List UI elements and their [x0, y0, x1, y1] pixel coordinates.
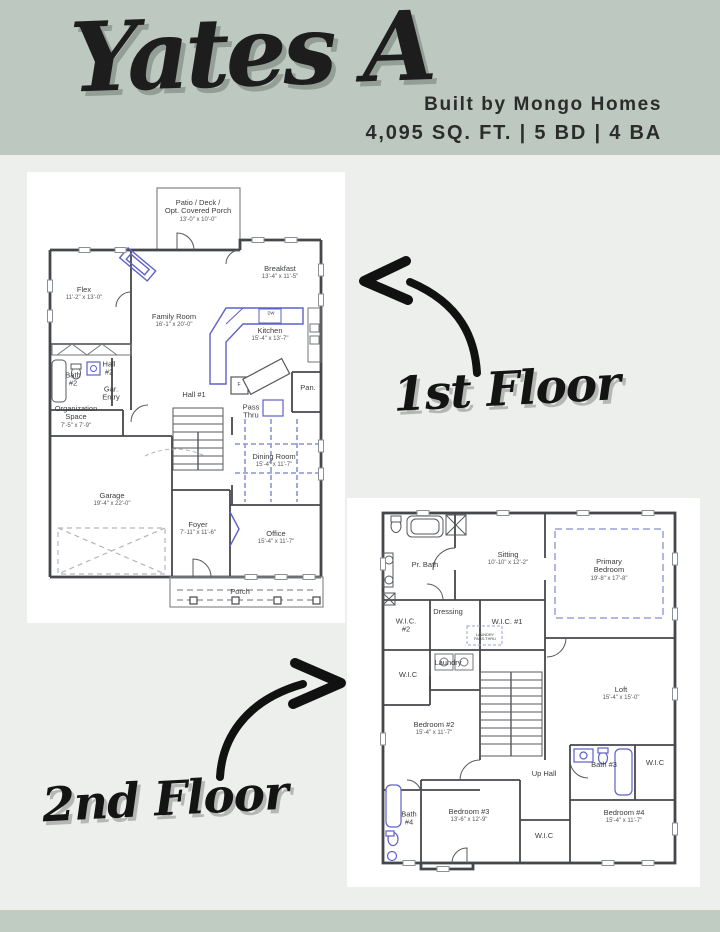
bath4-fixtures — [386, 785, 401, 861]
room-label: Up Hall — [532, 770, 557, 778]
room-name: Loft — [603, 686, 640, 694]
room-label: Office15'-4" x 11'-7" — [258, 530, 294, 546]
cased-opening — [145, 449, 205, 456]
room-dimensions: 11'-2" x 13'-0" — [66, 295, 102, 302]
room-name: Dressing — [433, 608, 463, 616]
room-name: Up Hall — [532, 770, 557, 778]
room-label: Gar. Entry — [102, 386, 120, 403]
room-dimensions: 15'-4" x 11'-7" — [252, 462, 295, 469]
room-name: Bath #4 — [401, 811, 416, 828]
room-name: Hall #1 — [182, 391, 205, 399]
room-label: LAUNDRY PASS-THRU — [474, 633, 496, 642]
room-label: Porch — [230, 588, 250, 596]
office-french-door — [230, 512, 239, 546]
room-name: Primary Bedroom — [591, 558, 628, 575]
room-dimensions: 13'-4" x 11'-5" — [262, 274, 298, 281]
room-label: Primary Bedroom19'-8" x 17'-8" — [591, 558, 628, 583]
room-label: Sitting10'-10" x 12'-2" — [488, 551, 528, 567]
room-label: W.I.C. #1 — [492, 618, 523, 626]
room-label: W.I.C — [399, 671, 417, 679]
stairs — [480, 672, 542, 756]
room-label: Dressing — [433, 608, 463, 616]
room-name: W.I.C. #1 — [492, 618, 523, 626]
room-label: Bedroom #415'-4" x 11'-7" — [604, 809, 645, 825]
room-name: Sitting — [488, 551, 528, 559]
builder-name: Built by Mongo Homes — [365, 94, 662, 116]
room-label: Patio / Deck / Opt. Covered Porch13'-0" … — [165, 199, 231, 224]
room-dimensions: 15'-4" x 13'-7" — [252, 336, 289, 343]
room-label: Pass Thru — [243, 404, 260, 421]
room-label: Dining Room15'-4" x 11'-7" — [252, 453, 295, 469]
room-dimensions: 15'-4" x 11'-7" — [604, 818, 645, 825]
room-label: Pan. — [300, 384, 315, 392]
room-label: W.I.C — [646, 759, 664, 767]
room-label: Breakfast13'-4" x 11'-5" — [262, 265, 298, 281]
room-label: Pr. Bath — [412, 561, 439, 569]
room-name: Garage — [94, 492, 131, 500]
room-dimensions: 7'-5" x 7'-9" — [55, 423, 98, 430]
room-dimensions: 15'-4" x 15'-0" — [603, 695, 640, 702]
closet-band — [52, 344, 131, 355]
room-label: Family Room16'-1" x 20'-0" — [152, 313, 196, 329]
room-name: Pr. Bath — [412, 561, 439, 569]
room-label: Bedroom #313'-6" x 12'-9" — [449, 808, 490, 824]
room-name: LAUNDRY PASS-THRU — [474, 633, 496, 642]
room-label: W.I.C — [535, 832, 553, 840]
room-name: Bath #2 — [65, 372, 80, 389]
room-label: Organization Space7'-5" x 7'-9" — [55, 405, 98, 430]
page-title: Yates A — [68, 0, 451, 109]
pass-thru-cabinet — [263, 400, 283, 416]
room-name: Bedroom #4 — [604, 809, 645, 817]
room-dimensions: 15'-4" x 11'-7" — [258, 539, 294, 546]
room-name: Laundry — [434, 659, 461, 667]
room-name: Office — [258, 530, 294, 538]
footer-band — [0, 910, 720, 932]
room-name: Patio / Deck / Opt. Covered Porch — [165, 199, 231, 216]
room-name: W.I.C — [646, 759, 664, 767]
room-dimensions: 19'-8" x 17'-8" — [591, 576, 628, 583]
room-dimensions: 13'-0" x 10'-0" — [165, 217, 231, 224]
room-label: F — [237, 383, 240, 389]
room-label: Loft15'-4" x 15'-0" — [603, 686, 640, 702]
room-label: Bath #2 — [65, 372, 80, 389]
room-name: Pan. — [300, 384, 315, 392]
room-label: Bath #3 — [591, 761, 617, 769]
room-dimensions: 13'-6" x 12'-9" — [449, 817, 490, 824]
room-name: F — [237, 383, 240, 389]
appliance-column — [308, 308, 321, 362]
room-label: Laundry — [434, 659, 461, 667]
room-name: Flex — [66, 286, 102, 294]
room-label: DW — [268, 312, 275, 317]
room-name: W.I.C. #2 — [396, 618, 416, 635]
header-info: Built by Mongo Homes 4,095 SQ. FT. | 5 B… — [365, 94, 662, 145]
door-swings — [407, 548, 588, 863]
room-dimensions: 19'-4" x 22'-0" — [94, 501, 131, 508]
first-floor-label: 1st Floor — [392, 356, 621, 423]
kitchen-island — [231, 359, 290, 395]
room-name: Foyer — [180, 521, 216, 529]
room-label: Foyer7'-11" x 11'-6" — [180, 521, 216, 537]
room-name: Porch — [230, 588, 250, 596]
room-label: Hall #1 — [182, 391, 205, 399]
floorplan-panel-second-floor: Pr. BathSitting10'-10" x 12'-2"Primary B… — [347, 498, 700, 887]
room-label: Bedroom #215'-4" x 11'-7" — [414, 721, 455, 737]
home-specs: 4,095 SQ. FT. | 5 BD | 4 BA — [365, 122, 662, 145]
room-name: Pass Thru — [243, 404, 260, 421]
garage-door-dashed — [58, 528, 165, 574]
room-label: Garage19'-4" x 22'-0" — [94, 492, 131, 508]
room-name: Organization Space — [55, 405, 98, 422]
stairs — [173, 408, 223, 470]
room-name: Kitchen — [252, 327, 289, 335]
room-label: Flex11'-2" x 13'-0" — [66, 286, 102, 302]
room-dimensions: 10'-10" x 12'-2" — [488, 560, 528, 567]
room-name: Breakfast — [262, 265, 298, 273]
bath3-fixtures — [574, 748, 632, 795]
room-name: Bath #3 — [591, 761, 617, 769]
room-name: Hall #2 — [103, 361, 116, 378]
flyer-page: { "header": { "title": "Yates A", "build… — [0, 0, 720, 932]
room-label: Bath #4 — [401, 811, 416, 828]
door-swings — [116, 233, 240, 577]
room-name: Family Room — [152, 313, 196, 321]
room-name: DW — [268, 312, 275, 317]
room-name: Gar. Entry — [102, 386, 120, 403]
room-label: Kitchen15'-4" x 13'-7" — [252, 327, 289, 343]
room-name: Bedroom #3 — [449, 808, 490, 816]
room-name: Dining Room — [252, 453, 295, 461]
room-name: Bedroom #2 — [414, 721, 455, 729]
room-dimensions: 16'-1" x 20'-0" — [152, 322, 196, 329]
second-floor-label: 2nd Floor — [41, 766, 289, 834]
room-dimensions: 7'-11" x 11'-6" — [180, 530, 216, 537]
room-name: W.I.C — [399, 671, 417, 679]
room-label: Hall #2 — [103, 361, 116, 378]
room-dimensions: 15'-4" x 11'-7" — [414, 730, 455, 737]
room-name: W.I.C — [535, 832, 553, 840]
floorplan-panel-first-floor: Patio / Deck / Opt. Covered Porch13'-0" … — [27, 172, 345, 623]
arrow-to-first-floor — [352, 248, 487, 383]
room-label: W.I.C. #2 — [396, 618, 416, 635]
